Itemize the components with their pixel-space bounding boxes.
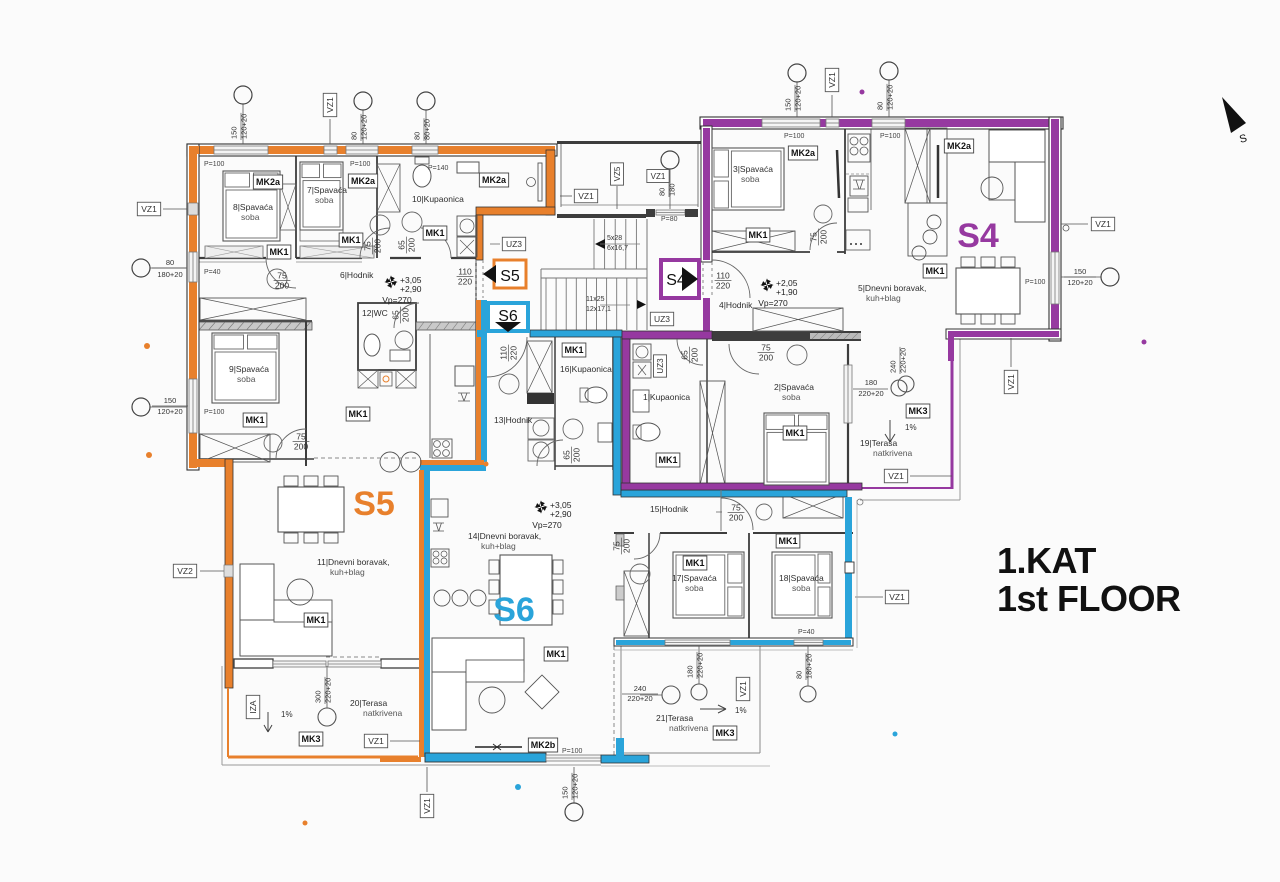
- svg-text:MK1: MK1: [658, 455, 677, 465]
- svg-text:75: 75: [277, 271, 287, 281]
- svg-text:200: 200: [275, 281, 289, 291]
- svg-text:P=100: P=100: [562, 748, 583, 755]
- svg-text:1%: 1%: [281, 710, 293, 719]
- svg-text:soba: soba: [241, 212, 260, 222]
- svg-text:MK2b: MK2b: [531, 740, 556, 750]
- svg-text:150: 150: [164, 396, 177, 405]
- svg-text:P=100: P=100: [350, 161, 371, 168]
- svg-text:75: 75: [612, 541, 622, 551]
- svg-text:65: 65: [562, 450, 572, 460]
- svg-text:VZ2: VZ2: [177, 566, 193, 576]
- svg-text:80: 80: [413, 132, 422, 140]
- svg-text:80: 80: [658, 188, 667, 196]
- svg-text:MK1: MK1: [564, 345, 583, 355]
- svg-text:1st FLOOR: 1st FLOOR: [997, 578, 1181, 619]
- svg-text:MK1: MK1: [748, 230, 767, 240]
- svg-text:VZ1: VZ1: [827, 72, 837, 88]
- svg-text:12|WC: 12|WC: [362, 308, 388, 318]
- svg-text:16|Kupaonica: 16|Kupaonica: [560, 364, 612, 374]
- svg-text:S5: S5: [500, 268, 520, 285]
- svg-text:6|Hodnik: 6|Hodnik: [340, 270, 374, 280]
- svg-text:200: 200: [622, 539, 632, 553]
- svg-text:MK1: MK1: [245, 415, 264, 425]
- svg-text:80: 80: [876, 102, 885, 110]
- svg-text:220: 220: [716, 281, 730, 291]
- svg-text:VZ1: VZ1: [1006, 374, 1016, 390]
- svg-text:MK3: MK3: [715, 728, 734, 738]
- svg-text:150: 150: [561, 786, 570, 799]
- svg-text:110: 110: [499, 346, 509, 360]
- svg-text:IZA: IZA: [248, 700, 258, 714]
- svg-text:P=100: P=100: [204, 161, 225, 168]
- svg-text:21|Terasa: 21|Terasa: [656, 713, 693, 723]
- svg-text:65: 65: [680, 350, 690, 360]
- svg-text:S6: S6: [493, 591, 535, 629]
- svg-text:5|Dnevni boravak,: 5|Dnevni boravak,: [858, 283, 926, 293]
- svg-text:UZ3: UZ3: [654, 314, 670, 324]
- svg-text:MK1: MK1: [685, 558, 704, 568]
- svg-text:110: 110: [458, 267, 472, 277]
- svg-text:MK2a: MK2a: [351, 176, 376, 186]
- svg-text:MK1: MK1: [341, 235, 360, 245]
- svg-text:S4: S4: [957, 217, 999, 255]
- svg-text:5x28: 5x28: [607, 235, 622, 242]
- svg-text:+2,90: +2,90: [550, 509, 572, 519]
- svg-text:300: 300: [314, 690, 323, 703]
- svg-text:13|Hodnik: 13|Hodnik: [494, 415, 533, 425]
- svg-text:soba: soba: [237, 374, 256, 384]
- svg-text:180: 180: [686, 665, 695, 678]
- svg-text:80: 80: [795, 671, 804, 679]
- svg-text:11x25: 11x25: [586, 296, 605, 303]
- svg-text:+2,90: +2,90: [400, 284, 422, 294]
- svg-text:80: 80: [350, 132, 359, 140]
- svg-text:MK1: MK1: [348, 409, 367, 419]
- svg-text:3|Spavaća: 3|Spavaća: [733, 164, 773, 174]
- svg-text:MK2a: MK2a: [791, 148, 816, 158]
- svg-text:9|Spavaća: 9|Spavaća: [229, 364, 269, 374]
- svg-text:S5: S5: [353, 485, 395, 523]
- svg-text:8|Spavaća: 8|Spavaća: [233, 202, 273, 212]
- svg-text:14|Dnevni boravak,: 14|Dnevni boravak,: [468, 531, 541, 541]
- svg-text:150: 150: [1074, 267, 1087, 276]
- svg-text:MK1: MK1: [925, 266, 944, 276]
- svg-text:MK2a: MK2a: [256, 177, 281, 187]
- svg-text:200: 200: [690, 348, 700, 362]
- svg-text:VZ1: VZ1: [141, 204, 157, 214]
- svg-text:P=100: P=100: [1025, 279, 1046, 286]
- svg-text:220+20: 220+20: [858, 389, 883, 398]
- svg-text:VZ1: VZ1: [1095, 219, 1111, 229]
- svg-text:80: 80: [166, 258, 174, 267]
- svg-text:VZ1: VZ1: [422, 798, 432, 814]
- svg-text:200: 200: [819, 230, 829, 244]
- svg-text:75: 75: [761, 343, 771, 353]
- svg-text:220: 220: [458, 277, 472, 287]
- svg-text:150: 150: [784, 98, 793, 111]
- svg-text:18|Spavaća: 18|Spavaća: [779, 573, 824, 583]
- svg-text:MK1: MK1: [425, 228, 444, 238]
- svg-text:Vp=270: Vp=270: [532, 520, 562, 530]
- svg-text:2|Spavaća: 2|Spavaća: [774, 382, 814, 392]
- svg-text:VZ1: VZ1: [325, 97, 335, 113]
- svg-text:VZ1: VZ1: [889, 592, 905, 602]
- svg-text:UZ3: UZ3: [656, 358, 665, 374]
- svg-text:natkrivena: natkrivena: [873, 448, 912, 458]
- svg-text:VZ1: VZ1: [368, 736, 384, 746]
- svg-text:MK3: MK3: [908, 406, 927, 416]
- svg-text:soba: soba: [782, 392, 801, 402]
- svg-text:1%: 1%: [735, 706, 747, 715]
- svg-text:200: 200: [373, 239, 383, 253]
- svg-text:kuh+blag: kuh+blag: [330, 567, 365, 577]
- svg-text:UZ3: UZ3: [506, 239, 522, 249]
- svg-text:200: 200: [759, 353, 773, 363]
- svg-text:180+20: 180+20: [157, 270, 182, 279]
- svg-text:7|Spavaća: 7|Spavaća: [307, 185, 347, 195]
- svg-text:kuh+blag: kuh+blag: [866, 293, 901, 303]
- svg-text:MK3: MK3: [301, 734, 320, 744]
- svg-text:6x16,7: 6x16,7: [607, 245, 628, 252]
- svg-text:P=100: P=100: [880, 133, 901, 140]
- svg-text:17|Spavaća: 17|Spavaća: [672, 573, 717, 583]
- svg-text:75: 75: [731, 503, 741, 513]
- svg-text:240: 240: [634, 684, 647, 693]
- svg-text:10|Kupaonica: 10|Kupaonica: [412, 194, 464, 204]
- svg-text:soba: soba: [315, 195, 334, 205]
- svg-text:P=100: P=100: [784, 133, 805, 140]
- svg-text:VZ1: VZ1: [578, 191, 594, 201]
- svg-text:150: 150: [230, 126, 239, 139]
- svg-text:120+20: 120+20: [157, 407, 182, 416]
- svg-text:1.KAT: 1.KAT: [997, 540, 1096, 581]
- svg-text:soba: soba: [741, 174, 760, 184]
- svg-text:19|Terasa: 19|Terasa: [860, 438, 897, 448]
- svg-text:220+20: 220+20: [627, 694, 652, 703]
- svg-text:MK1: MK1: [546, 649, 565, 659]
- svg-text:VZ1: VZ1: [651, 172, 666, 181]
- svg-text:P=40: P=40: [204, 269, 221, 276]
- svg-text:220: 220: [509, 346, 519, 360]
- svg-text:kuh+blag: kuh+blag: [481, 541, 516, 551]
- svg-text:75: 75: [809, 232, 819, 242]
- svg-text:200: 200: [407, 238, 417, 252]
- svg-text:65: 65: [397, 240, 407, 250]
- svg-text:VZ5: VZ5: [613, 166, 622, 181]
- svg-text:P=100: P=100: [204, 409, 225, 416]
- svg-text:MK2a: MK2a: [947, 141, 972, 151]
- svg-text:12x17,1: 12x17,1: [586, 306, 611, 313]
- svg-text:MK1: MK1: [785, 428, 804, 438]
- svg-text:natkrivena: natkrivena: [363, 708, 402, 718]
- svg-text:MK1: MK1: [778, 536, 797, 546]
- svg-text:200: 200: [294, 442, 308, 452]
- svg-text:200: 200: [572, 448, 582, 462]
- svg-text:1%: 1%: [905, 423, 917, 432]
- svg-text:P=140: P=140: [428, 165, 449, 172]
- svg-text:11|Dnevni boravak,: 11|Dnevni boravak,: [317, 557, 389, 567]
- svg-text:P=40: P=40: [798, 629, 815, 636]
- svg-text:1|Kupaonica: 1|Kupaonica: [643, 392, 690, 402]
- svg-text:4|Hodnik: 4|Hodnik: [719, 300, 753, 310]
- svg-text:75: 75: [363, 241, 373, 251]
- svg-text:MK1: MK1: [306, 615, 325, 625]
- svg-text:120+20: 120+20: [1067, 278, 1092, 287]
- svg-text:MK1: MK1: [269, 247, 288, 257]
- svg-text:Vp=270: Vp=270: [758, 298, 788, 308]
- svg-text:110: 110: [716, 271, 730, 281]
- svg-text:200: 200: [729, 513, 743, 523]
- svg-text:VZ1: VZ1: [888, 471, 904, 481]
- svg-text:Vp=270: Vp=270: [382, 295, 412, 305]
- svg-text:15|Hodnik: 15|Hodnik: [650, 504, 689, 514]
- svg-text:natkrivena: natkrivena: [669, 723, 708, 733]
- svg-text:soba: soba: [792, 583, 811, 593]
- svg-text:75: 75: [296, 432, 306, 442]
- svg-text:soba: soba: [685, 583, 704, 593]
- svg-text:P=80: P=80: [661, 216, 678, 223]
- svg-text:VZ1: VZ1: [738, 681, 748, 697]
- svg-text:180: 180: [865, 378, 878, 387]
- svg-text:20|Terasa: 20|Terasa: [350, 698, 387, 708]
- svg-text:MK2a: MK2a: [482, 175, 507, 185]
- svg-text:+1,90: +1,90: [776, 287, 798, 297]
- svg-text:240: 240: [889, 360, 898, 373]
